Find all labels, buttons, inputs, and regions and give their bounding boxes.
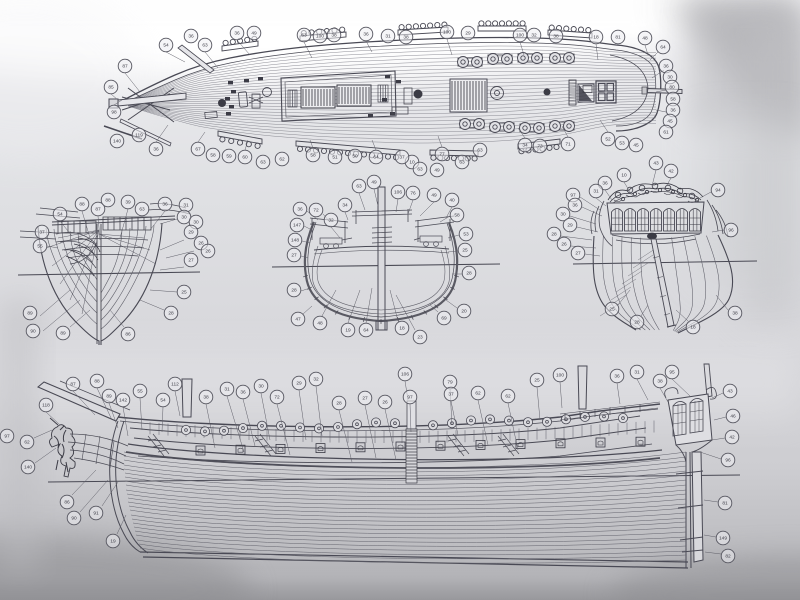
- svg-text:85: 85: [108, 85, 114, 91]
- svg-text:63: 63: [417, 167, 423, 173]
- svg-text:87: 87: [95, 207, 101, 213]
- svg-text:51: 51: [332, 155, 338, 161]
- svg-text:28: 28: [551, 232, 557, 238]
- svg-text:32: 32: [328, 218, 334, 224]
- svg-text:34: 34: [342, 203, 348, 209]
- svg-text:54: 54: [57, 212, 63, 218]
- svg-text:29: 29: [567, 223, 573, 229]
- svg-text:46: 46: [730, 414, 736, 420]
- svg-text:118: 118: [42, 403, 50, 409]
- svg-text:20: 20: [461, 309, 467, 315]
- svg-text:98: 98: [111, 110, 117, 116]
- svg-text:86: 86: [125, 332, 131, 338]
- svg-text:31: 31: [634, 370, 640, 376]
- svg-text:88: 88: [105, 198, 111, 204]
- svg-text:89: 89: [27, 311, 33, 317]
- svg-text:18: 18: [593, 35, 599, 41]
- svg-text:112: 112: [171, 382, 179, 388]
- svg-text:27: 27: [362, 396, 368, 402]
- svg-text:25: 25: [534, 378, 540, 384]
- svg-text:100: 100: [556, 373, 564, 379]
- svg-text:86: 86: [64, 500, 70, 506]
- svg-text:53: 53: [619, 141, 625, 147]
- svg-text:25: 25: [609, 307, 615, 313]
- svg-text:50: 50: [352, 154, 358, 160]
- svg-text:82: 82: [725, 554, 731, 560]
- svg-text:30: 30: [258, 384, 264, 390]
- svg-text:45: 45: [667, 119, 673, 125]
- svg-text:88: 88: [94, 379, 100, 385]
- svg-text:62: 62: [24, 440, 30, 446]
- svg-text:90: 90: [30, 329, 36, 335]
- svg-text:29: 29: [296, 381, 302, 387]
- svg-text:60: 60: [242, 155, 248, 161]
- svg-text:38: 38: [732, 311, 738, 317]
- svg-text:63: 63: [202, 43, 208, 49]
- svg-text:62: 62: [505, 394, 511, 400]
- svg-text:23: 23: [417, 335, 423, 341]
- svg-text:26: 26: [561, 242, 567, 248]
- svg-text:32: 32: [313, 377, 319, 383]
- svg-text:58: 58: [454, 213, 460, 219]
- svg-text:76: 76: [410, 191, 416, 197]
- svg-text:147: 147: [293, 223, 301, 229]
- svg-text:36: 36: [670, 108, 676, 114]
- svg-text:148: 148: [291, 238, 299, 244]
- svg-text:26: 26: [205, 249, 211, 255]
- svg-text:25: 25: [181, 290, 187, 296]
- svg-text:36: 36: [234, 31, 240, 37]
- svg-text:43: 43: [653, 161, 659, 167]
- svg-text:36: 36: [614, 374, 620, 380]
- svg-text:100: 100: [316, 34, 324, 40]
- svg-text:72: 72: [313, 208, 319, 214]
- svg-text:27: 27: [188, 258, 194, 264]
- svg-text:29: 29: [188, 230, 194, 236]
- svg-text:59: 59: [226, 154, 232, 160]
- svg-text:62: 62: [279, 157, 285, 163]
- svg-text:91: 91: [93, 511, 99, 517]
- svg-text:30: 30: [560, 212, 566, 218]
- svg-text:36: 36: [240, 390, 246, 396]
- svg-text:81: 81: [615, 35, 621, 41]
- svg-text:36: 36: [188, 34, 194, 40]
- svg-text:18: 18: [690, 325, 696, 331]
- svg-text:29: 29: [465, 31, 471, 37]
- svg-text:63: 63: [477, 148, 483, 154]
- svg-text:53: 53: [463, 232, 469, 238]
- svg-text:37: 37: [399, 155, 405, 161]
- svg-text:142: 142: [119, 398, 127, 404]
- svg-text:58: 58: [210, 153, 216, 159]
- svg-text:31: 31: [593, 189, 599, 195]
- svg-text:37: 37: [448, 392, 454, 398]
- svg-text:140: 140: [113, 139, 121, 145]
- svg-text:69: 69: [441, 316, 447, 322]
- svg-text:30: 30: [181, 215, 187, 221]
- svg-text:64: 64: [373, 155, 379, 161]
- svg-text:89: 89: [60, 331, 66, 337]
- svg-text:63: 63: [301, 33, 307, 39]
- svg-text:79: 79: [447, 380, 453, 386]
- svg-text:37: 37: [39, 230, 45, 236]
- svg-text:36: 36: [602, 181, 608, 187]
- svg-text:49: 49: [431, 193, 437, 199]
- svg-text:28: 28: [168, 311, 174, 317]
- svg-text:63: 63: [260, 160, 266, 166]
- svg-text:64: 64: [660, 45, 666, 51]
- svg-text:63: 63: [459, 160, 465, 166]
- svg-text:96: 96: [728, 228, 734, 234]
- svg-text:48: 48: [642, 36, 648, 42]
- svg-text:31: 31: [385, 34, 391, 40]
- svg-text:49: 49: [371, 180, 377, 186]
- svg-text:31: 31: [183, 203, 189, 209]
- svg-text:28: 28: [634, 320, 640, 326]
- svg-text:71: 71: [565, 142, 571, 148]
- svg-text:47: 47: [295, 317, 301, 323]
- svg-text:19: 19: [345, 328, 351, 334]
- svg-text:62: 62: [475, 391, 481, 397]
- svg-text:61: 61: [663, 130, 669, 136]
- svg-text:27: 27: [575, 251, 581, 257]
- svg-text:39: 39: [125, 200, 131, 206]
- svg-text:63: 63: [356, 184, 362, 190]
- svg-text:38: 38: [403, 35, 409, 41]
- svg-text:96: 96: [725, 458, 731, 464]
- svg-text:31: 31: [224, 387, 230, 393]
- svg-text:106: 106: [394, 190, 402, 196]
- svg-text:36: 36: [297, 207, 303, 213]
- svg-text:97: 97: [407, 395, 413, 401]
- svg-text:45: 45: [633, 143, 639, 149]
- svg-text:36: 36: [363, 32, 369, 38]
- svg-text:58: 58: [670, 97, 676, 103]
- svg-text:73: 73: [537, 144, 543, 150]
- svg-text:38: 38: [553, 34, 559, 40]
- svg-text:18: 18: [399, 326, 405, 332]
- svg-text:80: 80: [669, 85, 675, 91]
- svg-text:48: 48: [317, 321, 323, 327]
- svg-text:87: 87: [70, 382, 76, 388]
- svg-text:81: 81: [722, 501, 728, 507]
- svg-text:140: 140: [24, 465, 32, 471]
- svg-text:55: 55: [37, 244, 43, 250]
- svg-text:52: 52: [605, 137, 611, 143]
- svg-text:63: 63: [139, 207, 145, 213]
- svg-text:19: 19: [110, 539, 116, 545]
- svg-text:58: 58: [310, 153, 316, 159]
- svg-text:40: 40: [449, 198, 455, 204]
- svg-text:100: 100: [516, 33, 524, 39]
- svg-text:54: 54: [160, 398, 166, 404]
- svg-text:25: 25: [462, 248, 468, 254]
- svg-text:90: 90: [71, 516, 77, 522]
- svg-text:106: 106: [401, 372, 409, 378]
- svg-text:77: 77: [439, 152, 445, 158]
- svg-text:36: 36: [153, 147, 159, 153]
- svg-text:36: 36: [162, 202, 168, 208]
- svg-text:42: 42: [668, 169, 674, 175]
- svg-text:10: 10: [621, 173, 627, 179]
- svg-text:119: 119: [135, 133, 143, 139]
- svg-text:54: 54: [163, 43, 169, 49]
- svg-text:49: 49: [434, 168, 440, 174]
- svg-text:55: 55: [137, 389, 143, 395]
- svg-text:28: 28: [466, 271, 472, 277]
- svg-text:100: 100: [443, 30, 451, 36]
- svg-text:34: 34: [522, 143, 528, 149]
- svg-text:88: 88: [79, 202, 85, 208]
- svg-text:89: 89: [106, 394, 112, 400]
- svg-text:27: 27: [291, 253, 297, 259]
- svg-text:49: 49: [251, 31, 257, 37]
- svg-text:30: 30: [193, 220, 199, 226]
- svg-text:72: 72: [274, 395, 280, 401]
- svg-text:26: 26: [382, 400, 388, 406]
- svg-text:38: 38: [657, 379, 663, 385]
- svg-text:38: 38: [331, 33, 337, 39]
- svg-text:67: 67: [195, 147, 201, 153]
- svg-text:32: 32: [531, 33, 537, 39]
- svg-text:95: 95: [669, 370, 675, 376]
- svg-text:38: 38: [203, 395, 209, 401]
- svg-text:36: 36: [663, 64, 669, 70]
- svg-text:149: 149: [719, 536, 727, 542]
- svg-text:42: 42: [729, 435, 735, 441]
- svg-text:87: 87: [122, 64, 128, 70]
- svg-text:97: 97: [4, 434, 10, 440]
- svg-text:36: 36: [572, 203, 578, 209]
- svg-text:28: 28: [336, 401, 342, 407]
- svg-text:28: 28: [291, 288, 297, 294]
- svg-text:43: 43: [727, 389, 733, 395]
- svg-text:94: 94: [715, 188, 721, 194]
- svg-text:64: 64: [363, 328, 369, 334]
